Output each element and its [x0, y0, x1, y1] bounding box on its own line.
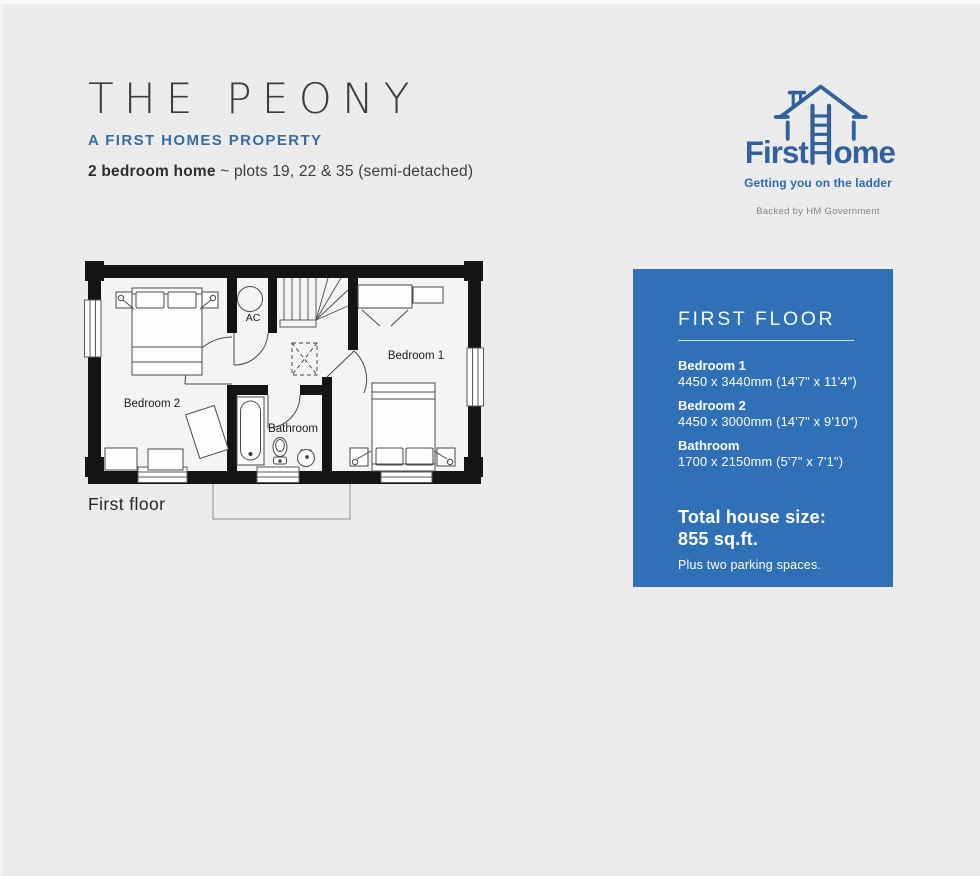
plots-summary-bold: 2 bedroom home [88, 163, 216, 180]
bathtub [237, 397, 264, 465]
room-spec-name: Bedroom 2 [678, 398, 863, 414]
lamp [447, 459, 452, 464]
window-bottom-bathroom [257, 467, 299, 483]
plots-summary: 2 bedroom home ~ plots 19, 22 & 35 (semi… [88, 163, 473, 181]
corner-pier [464, 261, 483, 281]
window-right [467, 348, 484, 406]
pillow [406, 448, 433, 465]
wardrobe [358, 285, 412, 308]
room-spec: Bedroom 2 4450 x 3000mm (14'7" x 9'10") [678, 398, 863, 429]
total-house-size: Total house size: 855 sq.ft. [678, 506, 863, 550]
brand-first-text: First [745, 135, 809, 170]
room-spec: Bathroom 1700 x 2150mm (5'7" x 7'1") [678, 438, 863, 469]
canopy-outline [213, 484, 350, 519]
floorplan-drawing: AC Bedroom 2 Bedroom 1 Bathroom First fl… [84, 258, 484, 530]
pillow [168, 292, 196, 308]
firsthomes-logo: First omes Getting you on the ladder Bac… [738, 80, 898, 217]
parking-note: Plus two parking spaces. [678, 558, 863, 572]
panel-divider [678, 340, 854, 341]
panel-heading: FIRST FLOOR [678, 308, 863, 331]
lamp [118, 295, 123, 300]
toilet [273, 438, 287, 465]
room-spec-dimensions: 1700 x 2150mm (5'7" x 7'1") [678, 454, 863, 469]
corner-pier [85, 457, 104, 477]
pillow [376, 448, 403, 465]
total-size-value: 855 sq.ft. [678, 528, 863, 550]
shelf [413, 287, 443, 303]
ladder-h-icon [812, 106, 829, 163]
room-label-bathroom: Bathroom [268, 423, 318, 435]
floor-label: First floor [88, 494, 165, 514]
page-subtitle: A FIRST HOMES PROPERTY [88, 132, 322, 149]
basin [298, 450, 315, 467]
room-label-bedroom1: Bedroom 1 [388, 350, 444, 362]
room-spec-name: Bedroom 1 [678, 358, 863, 374]
room-spec-dimensions: 4450 x 3000mm (14'7" x 9'10") [678, 414, 863, 429]
page-title: THE PEONY [88, 78, 420, 120]
logo-backed-by: Backed by HM Government [738, 206, 898, 217]
lamp [352, 459, 357, 464]
cabinet [105, 448, 137, 470]
corner-pier [464, 457, 483, 477]
house-ladder-icon: First omes [740, 80, 896, 174]
cabinet [148, 449, 183, 470]
plots-summary-rest: ~ plots 19, 22 & 35 (semi-detached) [220, 163, 473, 180]
room-label-bedroom2: Bedroom 2 [124, 398, 180, 410]
room-spec-dimensions: 4450 x 3440mm (14'7" x 11'4") [678, 374, 863, 389]
pillow [136, 292, 164, 308]
window-left [85, 300, 102, 357]
brochure-page: { "page": { "background_color": "#ebeceb… [0, 0, 980, 876]
total-size-label: Total house size: [678, 506, 863, 528]
room-spec: Bedroom 1 4450 x 3440mm (14'7" x 11'4") [678, 358, 863, 389]
lamp [210, 295, 215, 300]
corner-pier [85, 261, 104, 281]
room-label-ac: AC [246, 312, 261, 324]
brand-homes-rest-text: omes [834, 135, 896, 170]
room-spec-name: Bathroom [678, 438, 863, 454]
info-panel: FIRST FLOOR Bedroom 1 4450 x 3440mm (14'… [633, 269, 893, 587]
logo-tagline: Getting you on the ladder [738, 176, 898, 190]
